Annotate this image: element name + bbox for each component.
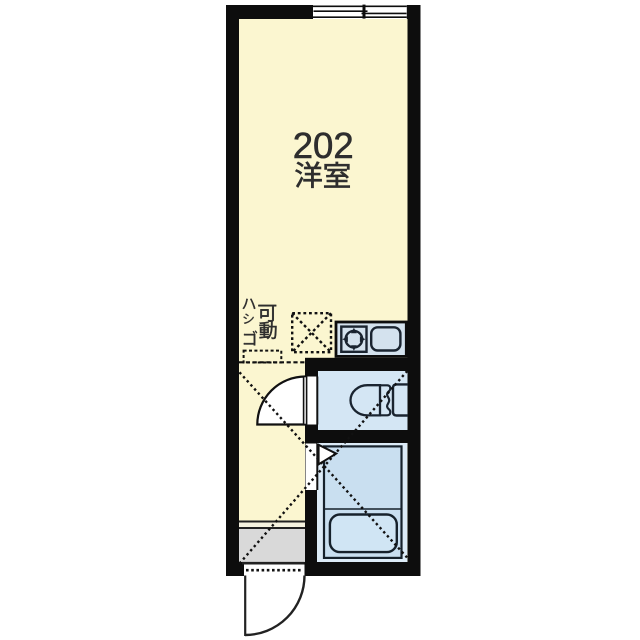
svg-text:202: 202 bbox=[293, 125, 354, 166]
